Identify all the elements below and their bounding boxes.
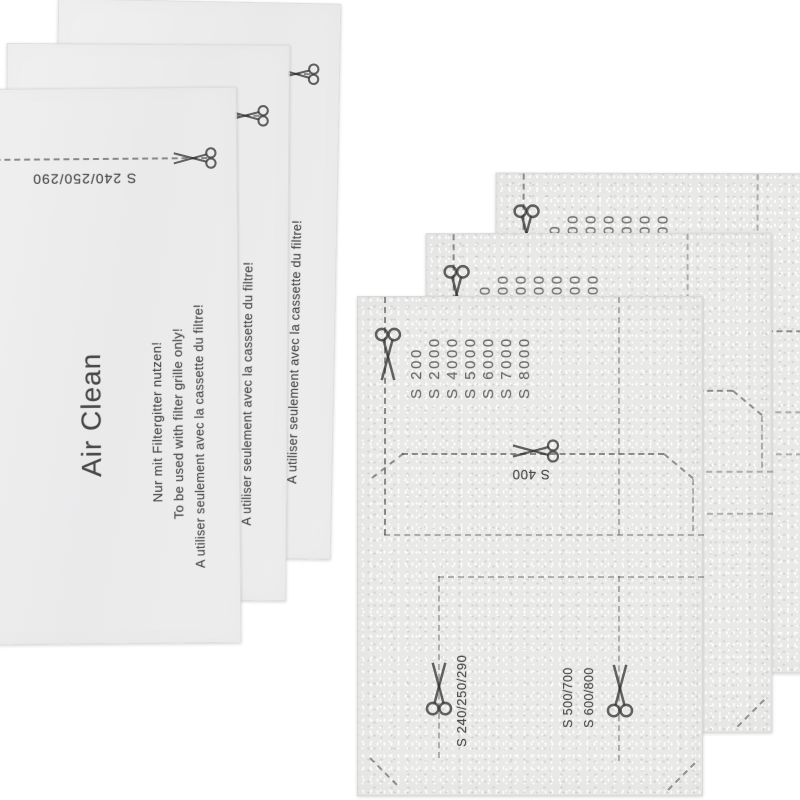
scissors-mark	[372, 322, 404, 388]
model-label: S 2000	[426, 299, 443, 399]
cut-line-segment	[692, 479, 694, 531]
cut-line-corner	[732, 390, 762, 416]
scissors-mark	[506, 437, 564, 465]
mid-cut-model-label: S 400	[503, 467, 559, 482]
cut-line-corner	[663, 453, 693, 479]
model-label: S 5000	[462, 299, 479, 399]
cut-line-corner	[371, 453, 404, 479]
guide-line-horizontal	[384, 534, 704, 536]
scissors-icon	[167, 145, 221, 171]
model-label: S 7000	[498, 299, 515, 399]
bottom-cut-model-label: S 600/800	[582, 644, 596, 728]
usage-note-french: A utiliser seulement avec la cassette du…	[240, 212, 256, 526]
bottom-cut-model-label: S 240/250/290	[454, 629, 469, 747]
bottom-cut-model-label: S 500/700	[561, 644, 575, 728]
usage-note-english: To be used with filter grille only!	[169, 285, 186, 519]
model-label: S 4000	[444, 299, 461, 399]
guide-line-vertical	[618, 297, 620, 535]
usage-note-german: Nur mit Filtergitter nutzen!	[148, 300, 165, 502]
scissors-mark	[423, 653, 455, 723]
cut-line-corner	[737, 699, 765, 727]
scissors-mark	[167, 145, 221, 171]
scissors-icon	[604, 655, 636, 725]
model-label: S 6000	[480, 299, 497, 399]
cut-line-corner	[667, 762, 695, 790]
product-photo: S 240/250/290 Air Clean Nur mit Filtergi…	[0, 0, 800, 800]
motor-filter-sheet-front: S 200 S 2000 S 4000 S 5000 S 6000 S 7000…	[357, 296, 703, 796]
scissors-icon	[423, 653, 455, 723]
cut-line-segment	[761, 416, 763, 468]
model-label: S 200	[408, 299, 425, 399]
guide-line-horizontal	[438, 576, 704, 578]
cut-line-model-label: S 240/250/290	[19, 171, 149, 188]
cut-line-corner	[369, 757, 397, 785]
scissors-icon	[506, 437, 564, 465]
scissors-icon	[372, 322, 404, 388]
brand-text: Air Clean	[75, 335, 108, 477]
scissors-mark	[604, 655, 636, 725]
exhaust-filter-sheet-front: S 240/250/290 Air Clean Nur mit Filtergi…	[0, 87, 241, 645]
model-label: S 8000	[516, 299, 533, 399]
usage-note-french: A utiliser seulement avec la cassette du…	[191, 254, 208, 568]
